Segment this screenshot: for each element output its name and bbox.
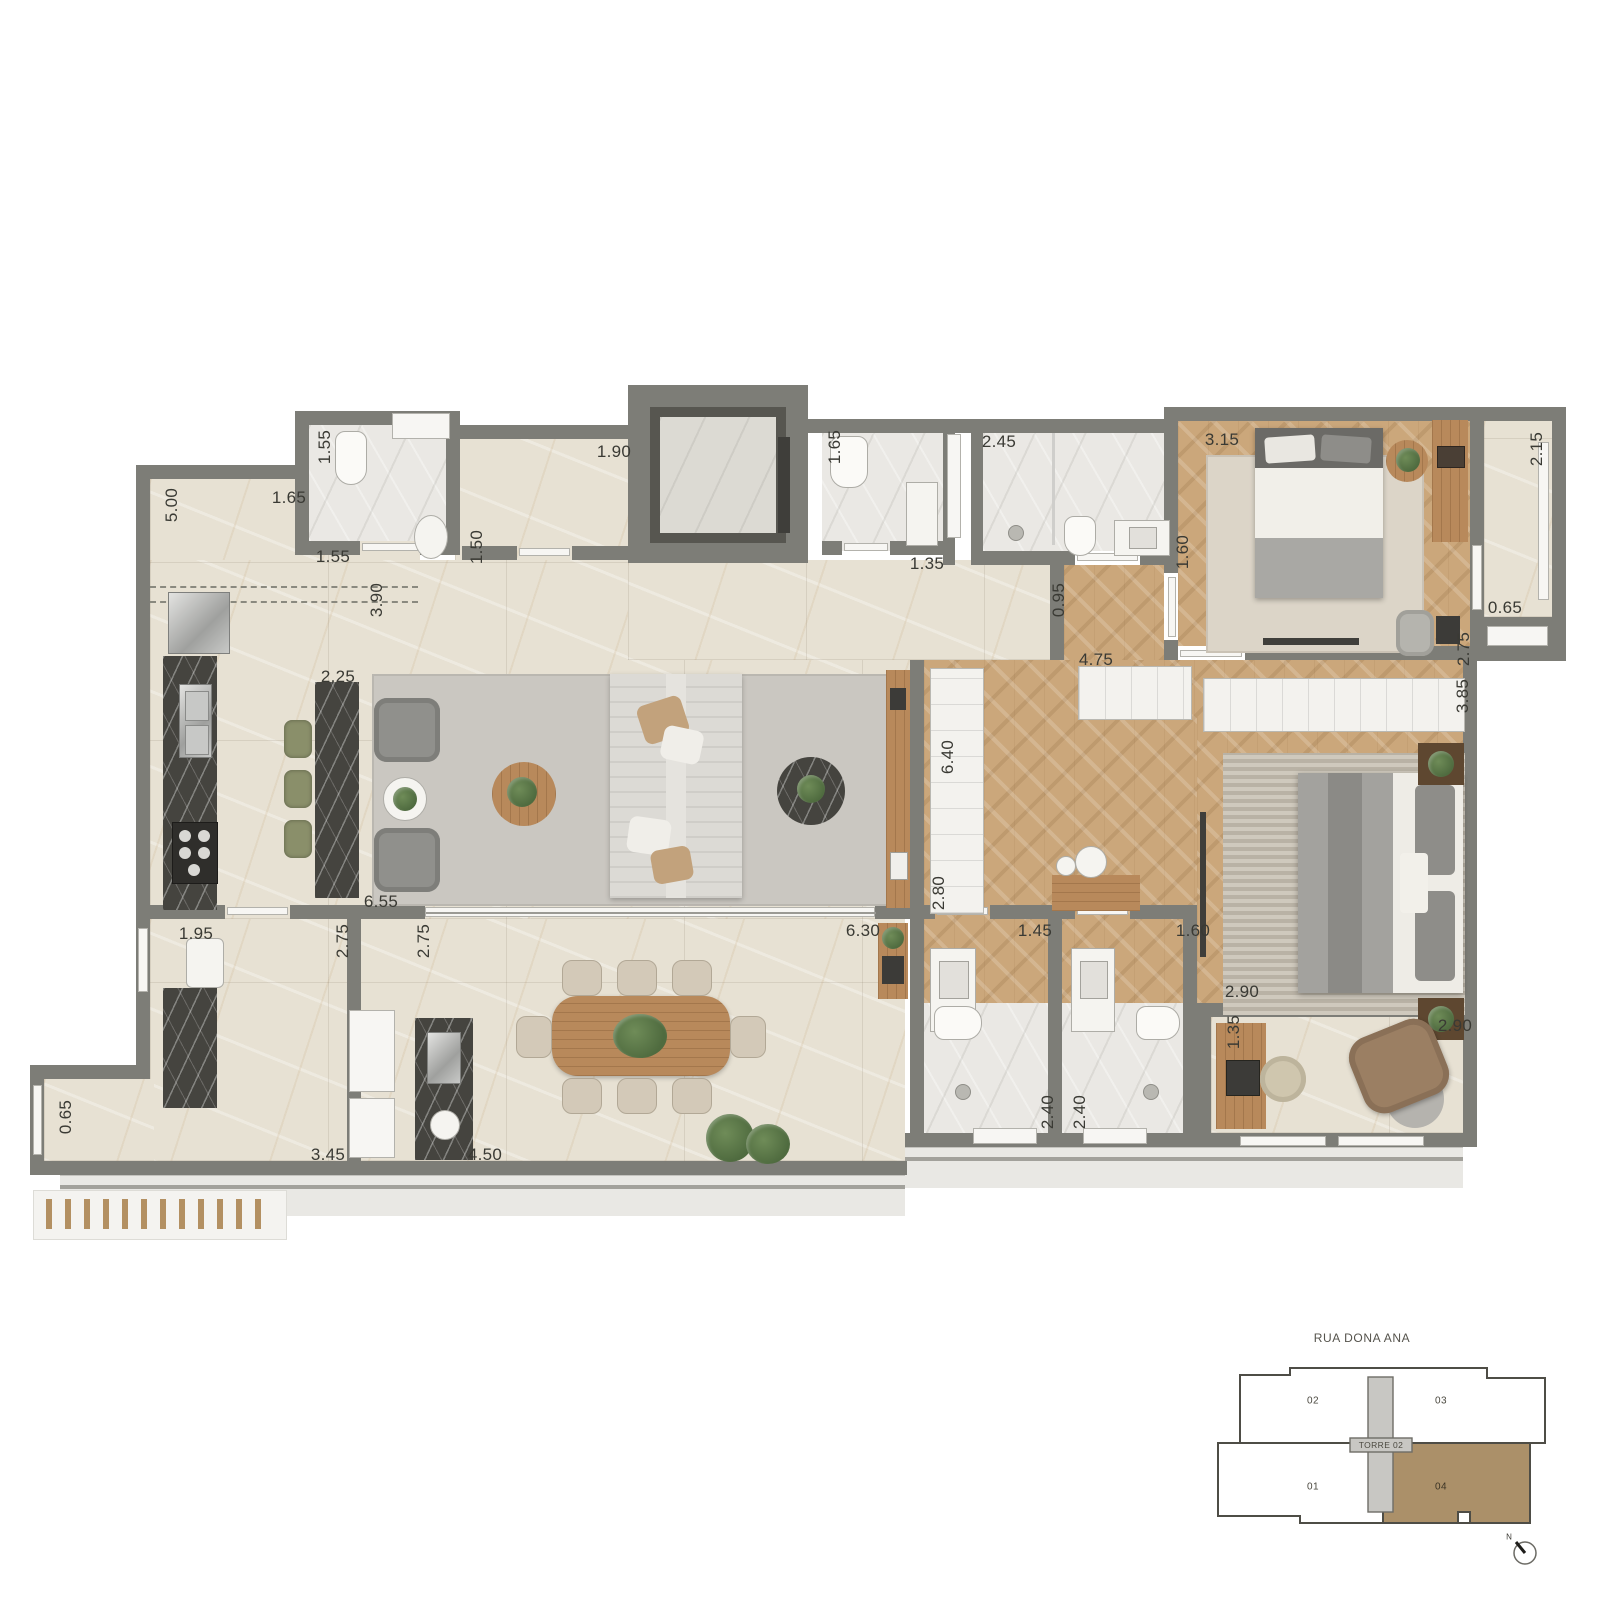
- keyplan-unit-label: 01: [1307, 1482, 1319, 1493]
- keyplan-unit-labels: 02030104: [0, 0, 1600, 1600]
- keyplan-unit-label: 03: [1435, 1396, 1447, 1407]
- floor-plan-canvas: 1.555.001.651.551.901.503.902.251.651.35…: [0, 0, 1600, 1600]
- keyplan-unit-label: 02: [1307, 1396, 1319, 1407]
- keyplan-unit-label: 04: [1435, 1482, 1447, 1493]
